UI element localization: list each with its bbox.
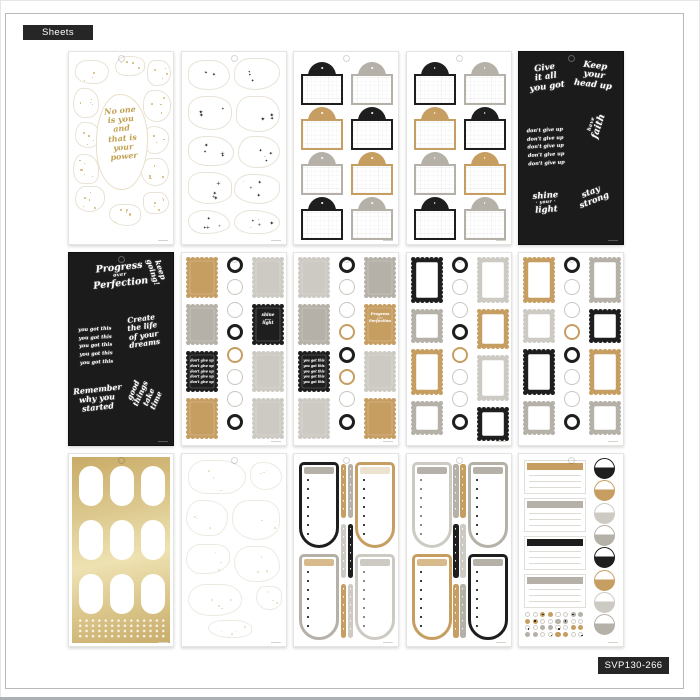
scallop-sticker <box>411 401 443 435</box>
sticker-sheet-4 <box>406 51 512 245</box>
gold-dot <box>84 163 85 164</box>
sparkle-icon: · <box>250 226 252 231</box>
arch-label-box <box>414 119 456 150</box>
dot-sticker <box>578 625 583 630</box>
oval-sticker <box>141 574 165 614</box>
gold-dot <box>84 80 85 81</box>
dot-sticker <box>548 612 553 617</box>
header-band <box>304 559 334 566</box>
circle-sticker <box>564 391 580 407</box>
gold-dot <box>166 73 168 75</box>
star-dot <box>542 614 544 616</box>
gold-dot <box>257 571 259 573</box>
rule-line <box>529 563 581 564</box>
star-dot <box>484 112 486 114</box>
sticker-blob <box>143 90 171 122</box>
dot-sticker <box>578 619 583 624</box>
quote-text: ProgressoverPerfection <box>365 312 395 323</box>
oval-sticker <box>110 466 134 506</box>
gold-dot <box>90 102 91 103</box>
sparkle-icon: ✦ <box>251 80 255 84</box>
arch-label-box <box>301 119 343 150</box>
day-circle-sticker <box>594 547 615 568</box>
star-dot <box>581 635 583 637</box>
scallop-sticker <box>477 355 509 401</box>
quote-sticker: Giveit allyou got <box>523 61 568 95</box>
gold-dot <box>120 209 121 210</box>
scallop-sticker <box>589 401 621 435</box>
header-band <box>527 463 583 470</box>
rule-line <box>529 525 581 526</box>
dot-sticker <box>540 632 545 637</box>
sparkle-icon: · <box>270 118 271 122</box>
star-dot <box>484 202 486 204</box>
circle-sticker <box>564 324 580 340</box>
strip-sticker <box>453 464 459 518</box>
sparkle-icon: ✦ <box>221 107 224 111</box>
sticker-blob: ✦✦✦ <box>234 58 280 90</box>
quote-text: Keepyourhead up <box>571 60 616 93</box>
gold-dot <box>156 142 157 143</box>
gold-dot <box>121 62 122 63</box>
sheet-footer-mark <box>608 642 618 644</box>
star-dot <box>565 620 567 622</box>
header-band <box>473 559 503 566</box>
sticker-blob <box>75 60 109 84</box>
sticker-sheet-5: Giveit allyou gotKeepyourhead updon't gi… <box>518 51 624 245</box>
header-band <box>360 467 390 474</box>
sku-badge: SVP130-266 <box>598 657 669 674</box>
quote-text: staystrong <box>572 182 614 214</box>
sticker-sheet-3 <box>293 51 399 245</box>
arch-label-box <box>414 74 456 105</box>
quote-sticker: Keepyourhead up <box>571 60 616 93</box>
oval-sticker <box>110 574 134 614</box>
star-dot <box>371 67 373 69</box>
scallop-sticker <box>364 398 396 439</box>
punch-hole <box>118 256 125 263</box>
sticker-sheet-6: ProgressoverPerfectionkeepgoing!you got … <box>68 252 174 446</box>
sparkle-icon: ✦ <box>198 111 203 117</box>
sticker-sheet-12 <box>181 453 287 647</box>
quote-sticker: shine· your ·light <box>523 190 569 217</box>
scallop-sticker <box>523 349 555 395</box>
gold-dot <box>161 112 163 114</box>
circle-sticker <box>227 302 243 318</box>
dot-sticker <box>533 619 538 624</box>
gold-dot <box>162 176 163 177</box>
checklist-sticker <box>299 554 339 640</box>
gold-dot <box>211 599 213 601</box>
list-sticker <box>524 460 586 494</box>
quote-text: Giveit allyou got <box>523 61 568 95</box>
punch-hole <box>343 256 350 263</box>
scallop-sticker <box>186 257 218 298</box>
day-circle-sticker <box>594 614 615 635</box>
quote-text: you got thisyou got thisyou got thisyou … <box>299 358 329 385</box>
punch-hole <box>456 457 463 464</box>
circle-sticker <box>339 302 355 318</box>
scallop-sticker <box>523 257 555 303</box>
strip-sticker <box>460 524 466 578</box>
sticker-blob: ✦✦·✦ <box>238 136 280 168</box>
sparkle-icon: + <box>257 224 261 229</box>
scallop-sticker <box>477 309 509 349</box>
sparkle-icon: ✦ <box>204 144 209 149</box>
rule-line <box>529 487 581 488</box>
product-image: Sheets No oneis youandthat isyourpower✦✦… <box>0 0 700 700</box>
gold-dot <box>129 213 131 215</box>
strip-sticker <box>341 584 347 638</box>
quote-text: No oneis youandthat isyourpower <box>95 104 150 163</box>
checklist-dots <box>420 479 422 537</box>
strip-sticker <box>453 524 459 578</box>
arch-label-box <box>351 119 393 150</box>
header-band <box>473 467 503 474</box>
gold-dot <box>83 206 84 207</box>
header-band <box>360 559 390 566</box>
sticker-sheet-11 <box>68 453 174 647</box>
gold-dot <box>266 470 267 471</box>
sticker-sheet-14 <box>406 453 512 647</box>
circle-sticker <box>564 369 580 385</box>
circle-sticker <box>339 279 355 295</box>
gold-dot <box>87 144 88 145</box>
header-band <box>527 501 583 508</box>
gold-dot <box>213 477 214 478</box>
dot-sticker <box>571 625 576 630</box>
gold-dot <box>154 69 156 71</box>
sheet-footer-mark <box>271 240 281 242</box>
arch-label-box <box>464 164 506 195</box>
oval-sticker <box>79 520 103 560</box>
star-dot <box>551 635 553 637</box>
gold-dot <box>92 104 93 105</box>
sparkle-icon: ✦ <box>248 71 251 75</box>
scallop-sticker <box>589 309 621 343</box>
gold-dot <box>79 160 80 161</box>
gold-dot <box>235 631 236 632</box>
punch-hole <box>231 256 238 263</box>
scallop-sticker: ProgressoverPerfection <box>364 304 396 345</box>
quote-text: don't give updon't give updon't give upd… <box>187 358 217 385</box>
gold-dot <box>154 206 155 207</box>
arch-label-box <box>351 74 393 105</box>
gold-dot <box>244 626 246 628</box>
checklist-dots <box>307 479 309 537</box>
dot-sticker <box>525 619 530 624</box>
scallop-sticker <box>252 398 284 439</box>
gold-dot <box>260 473 262 475</box>
gold-dot <box>84 174 85 175</box>
star-dot <box>484 157 486 159</box>
sticker-blob <box>143 192 169 214</box>
sticker-blob: ✦✦✦ <box>188 96 232 130</box>
checklist-sticker <box>412 462 452 548</box>
circle-sticker <box>227 279 243 295</box>
quote-sticker: Rememberwhy youstarted <box>73 383 122 414</box>
punch-hole <box>231 55 238 62</box>
arch-label-box <box>464 119 506 150</box>
circle-sticker <box>339 414 355 430</box>
dot-sticker <box>555 632 560 637</box>
gold-dot <box>165 68 166 69</box>
dot-sticker <box>563 612 568 617</box>
rule-line <box>529 589 581 590</box>
gold-dot <box>261 520 263 522</box>
checklist-sticker <box>299 462 339 548</box>
sparkle-icon: ✦ <box>269 222 274 228</box>
dot-sticker <box>571 619 576 624</box>
star-dot <box>371 202 373 204</box>
star-dot <box>371 112 373 114</box>
scallop-sticker <box>186 304 218 345</box>
checklist-dots <box>363 479 365 537</box>
quote-text: don't give updon't give updon't give upd… <box>523 125 569 168</box>
dot-sticker <box>525 625 530 630</box>
circle-sticker <box>227 324 243 340</box>
sheets-count-badge: Sheets <box>23 25 93 40</box>
gold-dot <box>93 72 95 74</box>
gold-dot <box>80 102 82 104</box>
strip-sticker <box>348 584 354 638</box>
day-circle-sticker <box>594 525 615 546</box>
sheet-footer-mark <box>383 240 393 242</box>
circle-sticker <box>227 414 243 430</box>
star-dot <box>528 628 530 630</box>
quote-sticker: don't give updon't give updon't give upd… <box>523 125 570 181</box>
circle-sticker <box>227 369 243 385</box>
sticker-blob <box>250 462 282 490</box>
sparkle-icon: + <box>216 182 221 187</box>
header-band <box>527 577 583 584</box>
scallop-sticker <box>186 398 218 439</box>
header-band <box>417 467 447 474</box>
header-band <box>527 539 583 546</box>
scallop-sticker <box>523 401 555 435</box>
circle-sticker <box>452 302 468 318</box>
sticker-blob <box>109 204 141 226</box>
star-dot <box>434 202 436 204</box>
punch-hole <box>568 55 575 62</box>
dot-sticker <box>540 625 545 630</box>
circle-sticker <box>564 347 580 363</box>
label-quote: ProgressoverPerfection <box>365 312 395 332</box>
circle-sticker <box>339 369 355 385</box>
scallop-sticker <box>523 309 555 343</box>
gold-dot <box>276 602 278 604</box>
scallop-sticker <box>364 257 396 298</box>
sheet-footer-mark <box>271 642 281 644</box>
day-circle-sticker <box>594 458 615 479</box>
gold-dot <box>163 199 164 200</box>
punch-hole <box>568 256 575 263</box>
sticker-blob: ✦✦✦· <box>236 96 280 132</box>
checklist-sticker <box>468 462 508 548</box>
rule-line <box>529 551 581 552</box>
gold-dot <box>90 192 91 193</box>
punch-hole <box>118 55 125 62</box>
punch-hole <box>231 457 238 464</box>
sticker-blob <box>186 500 228 536</box>
arch-label-box <box>464 209 506 240</box>
gold-dot <box>154 202 156 204</box>
circle-sticker <box>452 391 468 407</box>
gold-dot <box>158 209 160 211</box>
sheet-footer-mark <box>496 441 506 443</box>
list-sticker <box>524 498 586 532</box>
scallop-sticker <box>252 351 284 392</box>
sheet-footer-mark <box>608 240 618 242</box>
sheet-footer-mark <box>383 642 393 644</box>
sparkle-icon: ✦ <box>269 152 273 157</box>
day-circle-sticker <box>594 570 615 591</box>
scallop-sticker: shine· your ·light <box>252 304 284 345</box>
rule-line <box>529 513 581 514</box>
dot-sticker <box>533 612 538 617</box>
rule-line <box>529 557 581 558</box>
scallop-sticker <box>298 398 330 439</box>
star-dot <box>572 614 574 616</box>
list-sticker <box>524 536 586 570</box>
sticker-blob <box>186 544 230 574</box>
scallop-sticker <box>298 257 330 298</box>
sticker-blob <box>73 154 99 184</box>
scallop-sticker <box>411 309 443 343</box>
star-dot <box>534 620 536 622</box>
gold-dot <box>268 591 270 593</box>
arch-label-box <box>351 209 393 240</box>
circle-sticker <box>564 279 580 295</box>
sticker-blob <box>147 60 171 86</box>
sheet-footer-mark <box>158 642 168 644</box>
checklist-sticker <box>412 554 452 640</box>
quote-text: you got thisyou got thisyou got thisyou … <box>73 324 119 367</box>
quote-sticker: havefaith <box>583 104 611 149</box>
sku-badge-label: SVP130-266 <box>605 660 663 671</box>
gold-dot <box>261 556 262 557</box>
scallop-sticker <box>411 257 443 303</box>
sticker-blob: ✦✦+✦ <box>188 136 234 166</box>
dot-sticker <box>533 632 538 637</box>
arch-label-box <box>351 164 393 195</box>
strip-sticker <box>453 584 459 638</box>
rule-line <box>529 481 581 482</box>
gold-dot <box>83 132 85 134</box>
sparkle-icon: ✦ <box>251 219 254 223</box>
circle-sticker <box>227 347 243 363</box>
circle-sticker <box>452 347 468 363</box>
strip-sticker <box>460 464 466 518</box>
arch-label-box <box>464 74 506 105</box>
quote-text: shine· your ·light <box>523 190 569 217</box>
gold-dot <box>93 140 95 142</box>
checklist-dots <box>476 571 478 629</box>
punch-hole <box>456 256 463 263</box>
sticker-sheet-8: you got thisyou got thisyou got thisyou … <box>293 252 399 446</box>
circle-sticker <box>452 414 468 430</box>
gold-dot <box>126 211 127 212</box>
sheet-footer-mark <box>383 441 393 443</box>
header-band <box>417 559 447 566</box>
punch-hole <box>456 55 463 62</box>
gold-dot <box>267 572 268 573</box>
rule-line <box>529 595 581 596</box>
scallop-sticker <box>411 349 443 395</box>
circle-sticker <box>339 391 355 407</box>
circle-sticker <box>339 324 355 340</box>
gold-dot <box>215 552 217 554</box>
gold-dot <box>162 78 163 79</box>
oval-sticker <box>141 520 165 560</box>
gold-dot <box>92 77 93 78</box>
gold-dot <box>115 222 116 223</box>
gold-dot <box>218 605 220 607</box>
sticker-blob: ✦++✦ <box>188 210 230 234</box>
gold-dot <box>132 62 134 64</box>
sticker-blob <box>234 546 280 582</box>
sheets-badge-label: Sheets <box>42 27 74 38</box>
day-circle-sticker <box>594 503 615 524</box>
dot-sticker <box>555 625 560 630</box>
oval-sticker <box>110 520 134 560</box>
sticker-sheet-2: ✦✦·✦✦✦✦✦✦✦✦✦·✦✦+✦✦✦·✦✦+✦+✦+✦·✦++✦✦··+✦ <box>181 51 287 245</box>
arch-label-box <box>301 164 343 195</box>
gold-dot <box>274 521 276 523</box>
circle-sticker <box>564 414 580 430</box>
sheet-footer-mark <box>158 441 168 443</box>
sticker-blob <box>188 584 242 616</box>
header-band <box>304 467 334 474</box>
gold-dot <box>262 605 264 607</box>
dot-sticker <box>540 619 545 624</box>
sticker-sheet-9 <box>406 252 512 446</box>
gold-dot <box>208 470 210 472</box>
sticker-blob <box>208 620 252 638</box>
dot-sticker <box>563 632 568 637</box>
star-dot <box>321 112 323 114</box>
star-dot <box>484 67 486 69</box>
gold-dot <box>263 472 265 474</box>
arch-label-box <box>414 164 456 195</box>
dot-pattern <box>77 618 167 638</box>
gold-dot <box>163 97 165 99</box>
sticker-blob <box>232 500 280 540</box>
sparkle-icon: ✦ <box>258 149 262 154</box>
gold-dot <box>149 175 150 176</box>
gold-dot <box>220 562 222 564</box>
circle-sticker <box>452 279 468 295</box>
gold-dot <box>94 207 96 209</box>
sparkle-icon: ✦ <box>260 117 265 123</box>
scallop-sticker <box>252 257 284 298</box>
arch-label-box <box>301 74 343 105</box>
label-quote: shine· your ·light <box>253 313 283 333</box>
sticker-blob: ✦+✦+ <box>188 172 232 204</box>
strip-sticker <box>460 584 466 638</box>
quote-text: Createthe lifeof yourdreams <box>119 312 167 351</box>
quote-sticker: good thingstake time <box>123 372 168 418</box>
sheet-footer-mark <box>271 441 281 443</box>
gold-dot <box>89 199 91 201</box>
gold-dot <box>92 176 93 177</box>
strip-sticker <box>341 464 347 518</box>
strip-sticker <box>348 464 354 518</box>
oval-sticker <box>79 466 103 506</box>
star-dot <box>321 202 323 204</box>
gold-dot <box>126 61 128 63</box>
scallop-sticker: you got thisyou got thisyou got thisyou … <box>298 351 330 392</box>
